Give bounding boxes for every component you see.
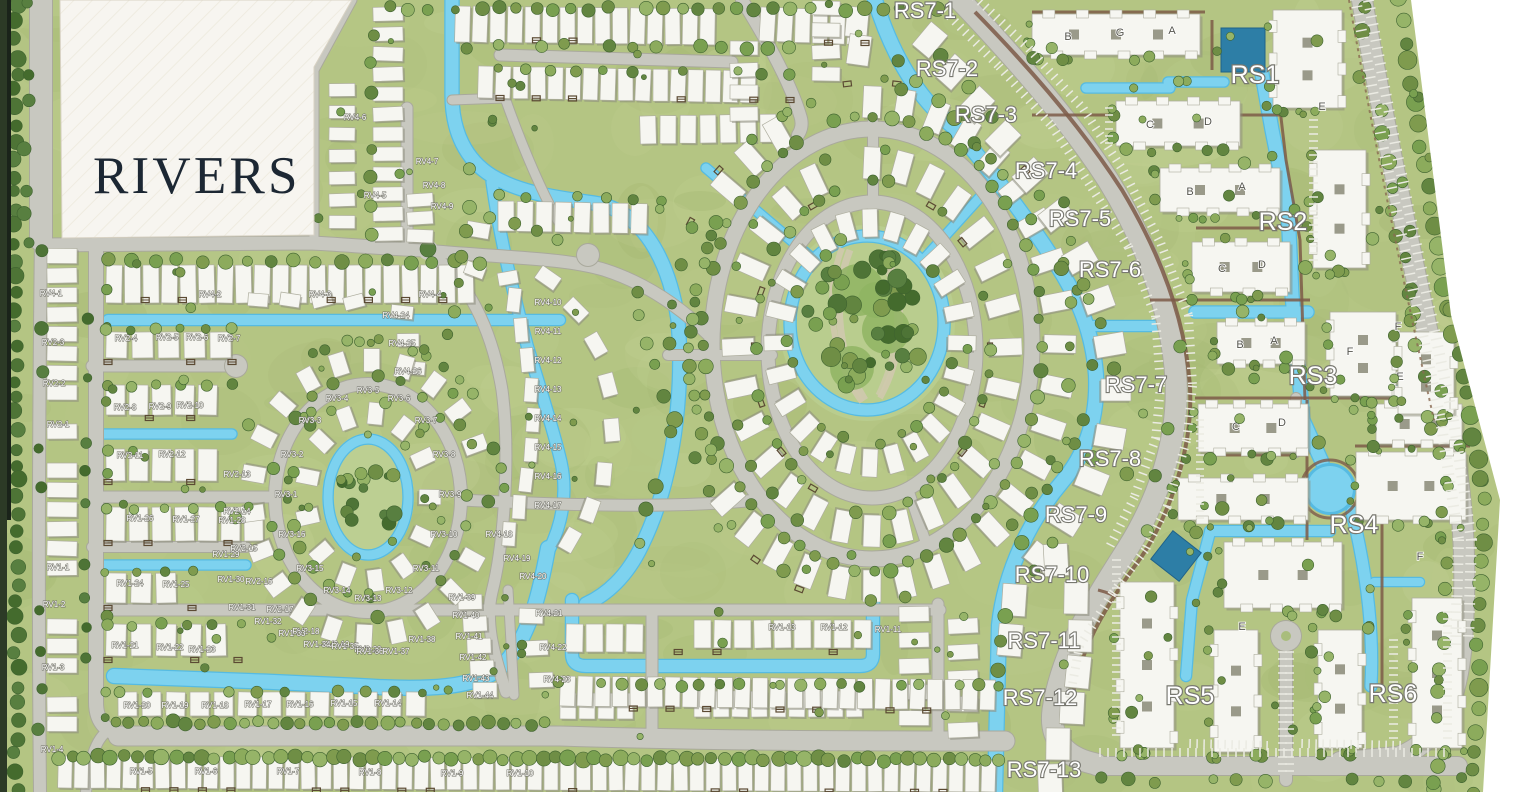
svg-text:RV4-15: RV4-15 xyxy=(535,443,563,452)
svg-text:RV3-14: RV3-14 xyxy=(324,586,352,595)
svg-text:RV1-4: RV1-4 xyxy=(41,745,64,754)
svg-text:RV1-16: RV1-16 xyxy=(287,700,315,709)
svg-text:RS7-7: RS7-7 xyxy=(1105,372,1167,397)
svg-text:RV1-32: RV1-32 xyxy=(255,617,283,626)
svg-text:RV2-13: RV2-13 xyxy=(224,470,252,479)
svg-text:RV2-10: RV2-10 xyxy=(177,401,205,410)
svg-text:RV1-2: RV1-2 xyxy=(43,600,66,609)
svg-text:RV1-8: RV1-8 xyxy=(359,768,382,777)
svg-text:B: B xyxy=(1064,31,1071,43)
svg-text:RV3-15: RV3-15 xyxy=(297,564,325,573)
svg-text:RV1-1: RV1-1 xyxy=(47,563,70,572)
svg-text:RV3-6: RV3-6 xyxy=(388,394,411,403)
svg-text:C: C xyxy=(1146,119,1154,131)
svg-text:A: A xyxy=(1270,335,1278,347)
svg-text:RV1-31: RV1-31 xyxy=(229,603,257,612)
svg-text:RV1-10: RV1-10 xyxy=(507,769,535,778)
svg-text:RV2-12: RV2-12 xyxy=(159,450,187,459)
svg-text:RV1-7: RV1-7 xyxy=(277,767,300,776)
svg-text:RIVERS: RIVERS xyxy=(93,147,301,205)
svg-text:RV1-37: RV1-37 xyxy=(383,647,411,656)
svg-text:B: B xyxy=(1186,186,1193,198)
svg-text:RV3-11: RV3-11 xyxy=(413,564,440,573)
svg-text:E: E xyxy=(1318,101,1325,113)
svg-text:RV3-12: RV3-12 xyxy=(386,586,414,595)
svg-text:RV2-8: RV2-8 xyxy=(114,403,137,412)
svg-text:RV1-18: RV1-18 xyxy=(202,701,230,710)
svg-text:RV1-36: RV1-36 xyxy=(357,647,385,656)
svg-text:RV3-16: RV3-16 xyxy=(279,530,307,539)
svg-text:RV4-4: RV4-4 xyxy=(419,290,442,299)
svg-text:F: F xyxy=(1347,346,1354,358)
svg-text:E: E xyxy=(1238,621,1245,633)
svg-text:RV4-25: RV4-25 xyxy=(389,339,417,348)
svg-text:RV1-39: RV1-39 xyxy=(449,593,477,602)
svg-text:RV1-42: RV1-42 xyxy=(460,653,488,662)
svg-text:RV1-5: RV1-5 xyxy=(130,767,153,776)
svg-text:RV3-3: RV3-3 xyxy=(299,416,322,425)
svg-text:RS3: RS3 xyxy=(1289,362,1338,390)
svg-text:RV2-11: RV2-11 xyxy=(117,451,144,460)
svg-text:RV4-21: RV4-21 xyxy=(536,609,564,618)
svg-text:C: C xyxy=(1218,263,1226,275)
svg-text:RV3-8: RV3-8 xyxy=(433,450,456,459)
svg-text:RV4-5: RV4-5 xyxy=(364,191,387,200)
svg-text:A: A xyxy=(1238,181,1246,193)
svg-text:RV4-20: RV4-20 xyxy=(520,572,548,581)
svg-text:RV1-21: RV1-21 xyxy=(112,641,140,650)
svg-text:RV2-17: RV2-17 xyxy=(267,605,295,614)
svg-text:RS7-3: RS7-3 xyxy=(955,102,1017,127)
svg-text:RV1-11: RV1-11 xyxy=(875,625,902,634)
svg-text:RS7-4: RS7-4 xyxy=(1015,158,1077,183)
svg-text:G: G xyxy=(1116,27,1125,39)
svg-text:RS7-6: RS7-6 xyxy=(1079,257,1141,282)
svg-text:RV1-19: RV1-19 xyxy=(162,701,190,710)
svg-text:RV4-13: RV4-13 xyxy=(535,385,563,394)
svg-text:F: F xyxy=(1395,321,1402,333)
svg-text:RV1-29: RV1-29 xyxy=(213,550,241,559)
svg-text:RV1-25: RV1-25 xyxy=(163,580,191,589)
svg-text:RV4-14: RV4-14 xyxy=(535,414,563,423)
svg-text:RV1-43: RV1-43 xyxy=(463,674,491,683)
svg-text:RS7-13: RS7-13 xyxy=(1007,757,1082,782)
svg-text:RV3-13: RV3-13 xyxy=(355,594,383,603)
svg-text:RV4-7: RV4-7 xyxy=(416,157,439,166)
svg-text:RV1-35: RV1-35 xyxy=(332,642,360,651)
svg-text:RV1-26: RV1-26 xyxy=(127,514,155,523)
svg-text:RV1-27: RV1-27 xyxy=(173,515,201,524)
svg-text:D: D xyxy=(1204,116,1212,128)
svg-text:RV3-4: RV3-4 xyxy=(326,394,349,403)
svg-text:RS7-11: RS7-11 xyxy=(1008,628,1081,653)
svg-text:RV1-15: RV1-15 xyxy=(331,699,359,708)
svg-text:RV4-16: RV4-16 xyxy=(535,472,563,481)
svg-text:RV4-10: RV4-10 xyxy=(535,298,563,307)
svg-text:RV2-7: RV2-7 xyxy=(218,334,241,343)
svg-text:RV4-18: RV4-18 xyxy=(486,530,514,539)
svg-text:RV3-2: RV3-2 xyxy=(281,450,304,459)
svg-text:RV1-23: RV1-23 xyxy=(189,645,217,654)
svg-text:RV4-22: RV4-22 xyxy=(540,643,568,652)
svg-text:RV1-14: RV1-14 xyxy=(375,699,403,708)
svg-text:RS1: RS1 xyxy=(1231,61,1280,89)
svg-text:RV1-34: RV1-34 xyxy=(304,640,332,649)
svg-text:RV4-8: RV4-8 xyxy=(423,181,446,190)
svg-text:RV1-3: RV1-3 xyxy=(42,663,65,672)
svg-text:RS5: RS5 xyxy=(1166,682,1215,710)
svg-text:RS7-5: RS7-5 xyxy=(1049,206,1111,231)
svg-text:RV1-44: RV1-44 xyxy=(467,691,495,700)
svg-text:RS7-8: RS7-8 xyxy=(1079,446,1141,471)
svg-text:RV1-24: RV1-24 xyxy=(117,579,145,588)
svg-text:RV2-16: RV2-16 xyxy=(246,577,274,586)
svg-text:RV4-17: RV4-17 xyxy=(535,501,563,510)
svg-text:RV2-2: RV2-2 xyxy=(43,379,66,388)
svg-text:RV4-9: RV4-9 xyxy=(431,202,454,211)
svg-text:D: D xyxy=(1278,417,1286,429)
svg-text:RV4-3: RV4-3 xyxy=(309,290,332,299)
svg-text:RV4-23: RV4-23 xyxy=(544,675,572,684)
svg-text:RV4-12: RV4-12 xyxy=(535,356,563,365)
svg-text:RV4-2: RV4-2 xyxy=(199,290,222,299)
svg-text:RV4-1: RV4-1 xyxy=(40,289,63,298)
svg-text:RV1-41: RV1-41 xyxy=(456,632,484,641)
svg-text:A: A xyxy=(1168,25,1176,37)
svg-text:RS7-2: RS7-2 xyxy=(916,56,978,81)
svg-text:RS2: RS2 xyxy=(1259,208,1308,236)
svg-text:RV1-30: RV1-30 xyxy=(218,575,246,584)
svg-text:RV1-22: RV1-22 xyxy=(157,643,185,652)
svg-text:RV1-28: RV1-28 xyxy=(219,516,247,525)
svg-text:RV2-5: RV2-5 xyxy=(156,333,179,342)
svg-text:RV4-11: RV4-11 xyxy=(535,327,562,336)
svg-text:F: F xyxy=(1417,551,1424,563)
svg-text:RV2-9: RV2-9 xyxy=(149,402,172,411)
svg-text:RV2-6: RV2-6 xyxy=(186,333,209,342)
svg-text:D: D xyxy=(1258,259,1266,271)
svg-text:RS7-12: RS7-12 xyxy=(1003,685,1078,710)
svg-text:RV3-7: RV3-7 xyxy=(415,416,438,425)
svg-text:RV3-1: RV3-1 xyxy=(275,490,298,499)
svg-text:RV2-3: RV2-3 xyxy=(42,338,65,347)
svg-text:RV1-9: RV1-9 xyxy=(441,769,464,778)
svg-text:RV1-33: RV1-33 xyxy=(279,629,307,638)
svg-text:RS7-1: RS7-1 xyxy=(894,0,956,23)
svg-text:RV1-40: RV1-40 xyxy=(453,611,481,620)
svg-text:RV3-9: RV3-9 xyxy=(439,490,462,499)
svg-text:RS4: RS4 xyxy=(1330,511,1379,539)
svg-text:RV1-12: RV1-12 xyxy=(821,623,849,632)
svg-text:RV1-6: RV1-6 xyxy=(195,767,218,776)
svg-text:RV2-14: RV2-14 xyxy=(224,507,252,516)
svg-text:RS6: RS6 xyxy=(1369,680,1418,708)
svg-text:RV4-19: RV4-19 xyxy=(504,554,532,563)
svg-text:RS7-9: RS7-9 xyxy=(1045,502,1107,527)
svg-text:RV4-26: RV4-26 xyxy=(395,367,423,376)
svg-text:RV1-17: RV1-17 xyxy=(245,700,273,709)
svg-text:RV1-38: RV1-38 xyxy=(409,635,437,644)
svg-text:RV3-10: RV3-10 xyxy=(431,530,459,539)
svg-text:RV3-5: RV3-5 xyxy=(357,386,380,395)
svg-text:RV4-24: RV4-24 xyxy=(383,311,411,320)
svg-text:RV2-1: RV2-1 xyxy=(47,420,70,429)
svg-text:RV2-4: RV2-4 xyxy=(115,334,138,343)
svg-text:RV4-6: RV4-6 xyxy=(344,113,367,122)
svg-text:RS7-10: RS7-10 xyxy=(1015,562,1090,587)
svg-text:B: B xyxy=(1236,339,1243,351)
svg-text:RV1-20: RV1-20 xyxy=(124,701,152,710)
svg-text:RV1-13: RV1-13 xyxy=(769,623,797,632)
